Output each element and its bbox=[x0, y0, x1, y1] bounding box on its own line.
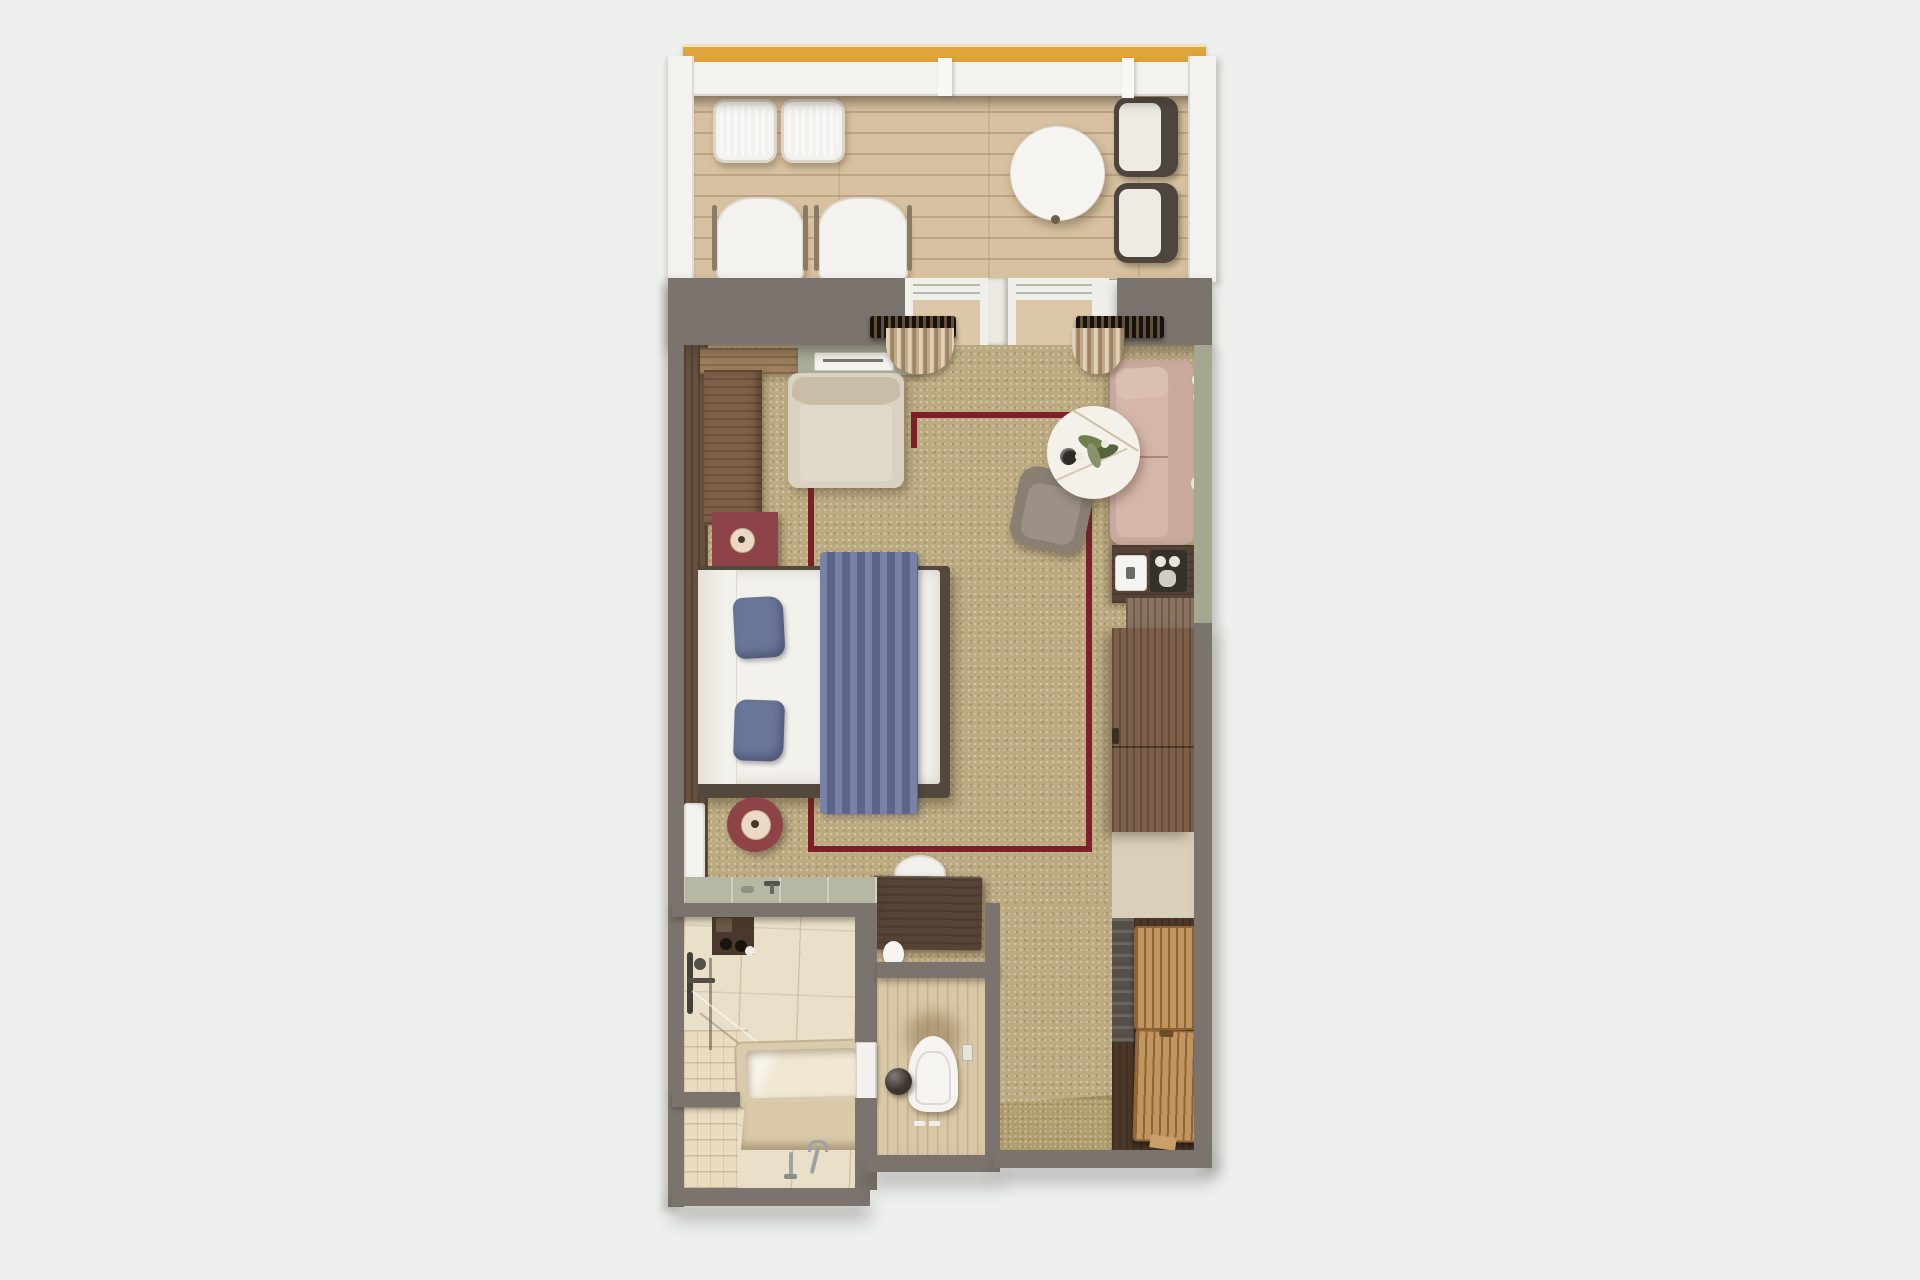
marble-coffee-table bbox=[1047, 406, 1140, 499]
bathtub-basin bbox=[745, 1048, 858, 1099]
bed-pillow bbox=[732, 596, 785, 660]
door-sill bbox=[905, 278, 988, 300]
shelf-box bbox=[716, 918, 732, 932]
shelf-hole bbox=[720, 938, 732, 950]
toilet-seat-line bbox=[915, 1051, 951, 1105]
bathtub-front-panel bbox=[741, 1102, 865, 1150]
door-jamb bbox=[1008, 278, 1016, 345]
tray-slit bbox=[823, 359, 883, 362]
wc-bottom-wall bbox=[867, 1155, 1000, 1172]
armchair-seat bbox=[800, 405, 892, 481]
door-jamb bbox=[980, 278, 988, 345]
balcony-left-wall bbox=[668, 56, 694, 280]
bathroom-bottom-wall bbox=[672, 1188, 870, 1206]
luggage-bench bbox=[1133, 1029, 1204, 1143]
closet-side-panel bbox=[1112, 918, 1134, 1042]
unit-handle bbox=[1112, 728, 1119, 744]
rug-border-bottom bbox=[808, 846, 1092, 852]
bed bbox=[698, 552, 950, 814]
cup bbox=[1169, 556, 1180, 567]
luggage-bench bbox=[1134, 926, 1202, 1030]
chaise-bolster bbox=[1115, 366, 1169, 400]
bathtub bbox=[734, 1038, 872, 1110]
wood-ledge bbox=[704, 370, 762, 525]
bath-plank-floor bbox=[684, 1107, 738, 1190]
closet-tile-pad bbox=[1112, 826, 1200, 920]
reading-armchair bbox=[788, 373, 904, 488]
tub-filler bbox=[789, 1152, 793, 1176]
footstool-weave bbox=[788, 106, 838, 156]
wall-rib bbox=[938, 58, 952, 96]
flower-blossom bbox=[1075, 452, 1084, 461]
wc-right-wall bbox=[985, 903, 1000, 1168]
lounger-frame-left bbox=[712, 205, 717, 271]
unit-seam bbox=[1112, 746, 1194, 748]
table-leg bbox=[1051, 215, 1060, 224]
wall-rib bbox=[1122, 58, 1134, 98]
oak-cabinet bbox=[1126, 598, 1196, 630]
candle-wick bbox=[751, 820, 759, 828]
footstool bbox=[781, 99, 845, 163]
vanity-counter bbox=[683, 877, 877, 905]
kettle-tray bbox=[1150, 550, 1187, 592]
footstool bbox=[713, 99, 777, 163]
wc-door bbox=[856, 1042, 876, 1102]
candle-wick bbox=[738, 536, 745, 543]
flower-blossom bbox=[1101, 440, 1109, 448]
recessed-shelf bbox=[712, 915, 754, 955]
handshower-hook bbox=[808, 1140, 828, 1152]
door-sill bbox=[1008, 278, 1100, 300]
footstool-weave bbox=[720, 106, 770, 156]
lounge-chair bbox=[818, 197, 908, 283]
lounger-frame-right bbox=[907, 205, 912, 271]
bed-pillow bbox=[733, 699, 785, 762]
doormat bbox=[998, 1094, 1112, 1154]
bathroom-top-wall bbox=[672, 903, 877, 917]
sheet-fold bbox=[698, 570, 737, 784]
dining-armchair bbox=[1114, 183, 1178, 263]
round-dining-table bbox=[1010, 126, 1105, 221]
lounger-frame-left bbox=[814, 205, 819, 271]
balcony-right-wall bbox=[1188, 56, 1216, 282]
floor-plan bbox=[0, 0, 1920, 1280]
right-outer-wall bbox=[1194, 623, 1212, 1168]
faucet-stem bbox=[770, 884, 774, 894]
bathroom-wc-divider bbox=[855, 915, 877, 1043]
chair-cushion bbox=[1119, 103, 1161, 171]
full-length-mirror bbox=[684, 803, 705, 883]
wall-hung-toilet bbox=[908, 1036, 958, 1112]
wc-top-wall bbox=[877, 962, 1000, 978]
lounger-frame-right bbox=[803, 205, 808, 271]
shower-bar bbox=[687, 952, 693, 1014]
flush-plate bbox=[914, 1121, 925, 1126]
right-wall-sage bbox=[1194, 345, 1212, 623]
coffee-machine bbox=[1115, 555, 1147, 591]
shelf-ball bbox=[745, 946, 755, 956]
rug-border-stub bbox=[911, 412, 917, 448]
console-tray bbox=[814, 352, 894, 371]
shower-half-wall bbox=[672, 1092, 740, 1107]
door-mullion bbox=[988, 278, 1008, 345]
tub-filler-base bbox=[784, 1174, 797, 1179]
paper-holder bbox=[962, 1044, 973, 1061]
dining-armchair bbox=[1114, 97, 1178, 177]
coffee-machine-glyph bbox=[1126, 567, 1135, 579]
flush-plate bbox=[929, 1121, 940, 1126]
kettle bbox=[1159, 570, 1176, 587]
shower-head bbox=[694, 958, 706, 970]
cup bbox=[1155, 556, 1166, 567]
tv-wardrobe-unit bbox=[1112, 628, 1194, 832]
lounge-chair bbox=[716, 197, 804, 283]
decor-sphere bbox=[885, 1068, 912, 1095]
chair-cushion bbox=[1119, 189, 1161, 257]
armchair-back bbox=[792, 377, 900, 407]
bench-handle bbox=[1159, 1030, 1173, 1037]
entry-bottom-wall bbox=[995, 1150, 1212, 1168]
vanity-desk bbox=[872, 875, 983, 950]
round-nightstand bbox=[727, 797, 783, 852]
bathroom-wc-divider-lower bbox=[855, 1098, 877, 1190]
bed-runner bbox=[820, 552, 918, 814]
soap-dish bbox=[741, 886, 754, 893]
left-outer-wall bbox=[668, 278, 684, 1207]
